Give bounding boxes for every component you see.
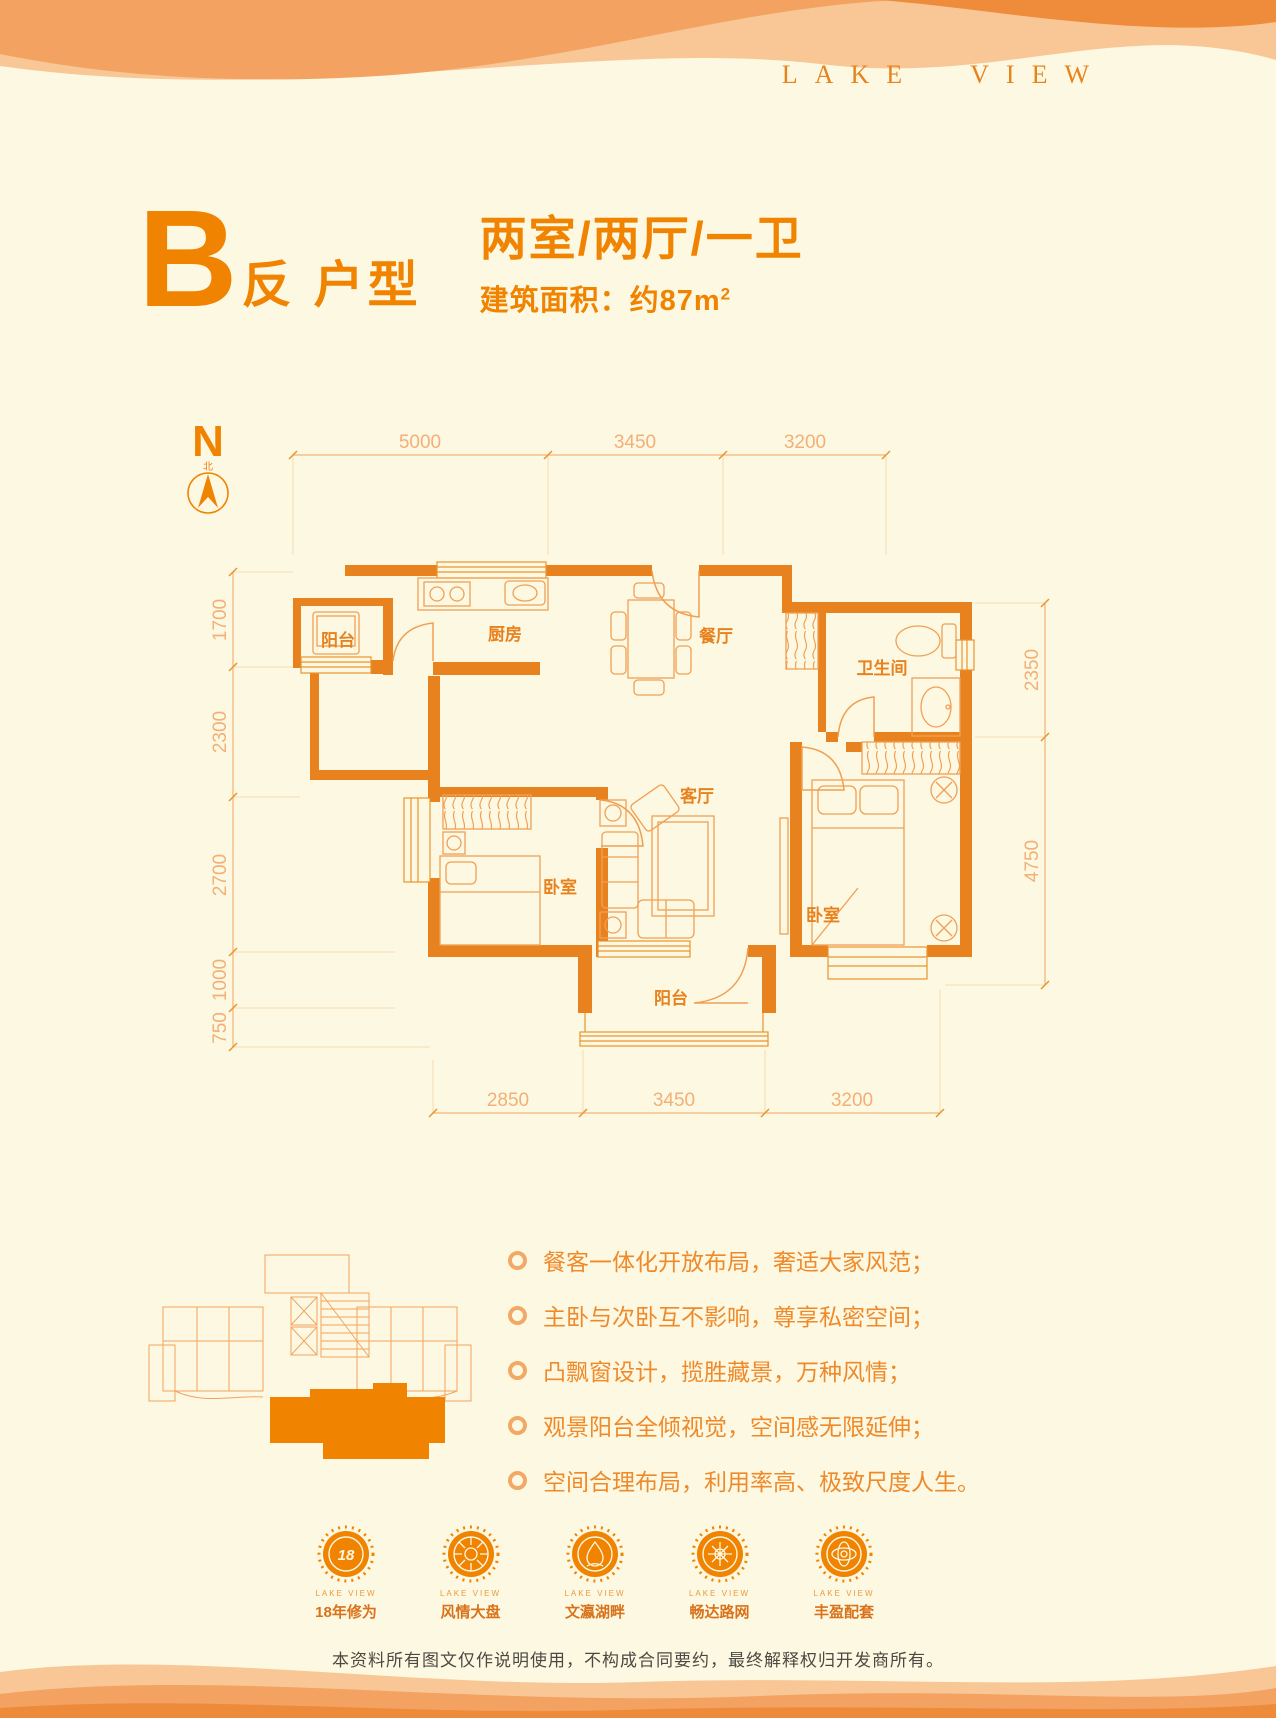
dim-left-3: 2700 [210, 854, 231, 896]
badge-label: 18年修为 [315, 1601, 377, 1622]
bullet-ring-icon [508, 1361, 527, 1380]
key-plan-highlighted-unit [270, 1383, 445, 1459]
badge-subtext: LAKE VIEW [689, 1589, 750, 1598]
label-balcony-bottom: 阳台 [654, 988, 688, 1008]
medallion-icon [441, 1524, 501, 1584]
bullet-ring-icon [508, 1471, 527, 1490]
area-text: 建筑面积：约87m2 [480, 277, 804, 319]
label-bathroom: 卫生间 [857, 658, 908, 678]
badge-subtext: LAKE VIEW [315, 1589, 376, 1598]
dim-left-1: 1700 [210, 599, 231, 641]
dim-bottom: 2850 3450 3200 [429, 1090, 944, 1117]
dim-bottom-2: 3450 [653, 1090, 695, 1111]
dim-right: 2350 4750 [1022, 599, 1049, 989]
title-block: B 反 户型 两室/两厅/一卫 建筑面积：约87m2 [138, 200, 804, 319]
entry-door-arc [652, 571, 699, 617]
label-living: 客厅 [679, 786, 714, 806]
key-plan-outline [149, 1255, 471, 1401]
feature-text: 观景阳台全倾视觉，空间感无限延伸； [543, 1408, 934, 1442]
medallion-icon [690, 1524, 750, 1584]
unit-letter: B [138, 200, 238, 319]
dim-left-4: 1000 [210, 959, 231, 1001]
dim-left-2: 2300 [210, 711, 231, 753]
badge-glyph: 18 [338, 1547, 355, 1564]
layout-title: 两室/两厅/一卫 [480, 200, 804, 269]
feature-item: 主卧与次卧互不影响，尊享私密空间； [508, 1298, 948, 1332]
bedroom-right-door-arc [802, 747, 844, 790]
badge-lakeside: LAKE VIEW 文瀛湖畔 [537, 1524, 653, 1622]
feature-item: 凸飘窗设计，揽胜藏景，万种风情； [508, 1353, 948, 1387]
feature-item: 空间合理布局，利用率高、极致尺度人生。 [508, 1463, 948, 1497]
kitchen-balcony-door-arc [393, 623, 433, 661]
plan-furniture [313, 578, 960, 945]
dim-top: 5000 3450 3200 [289, 432, 890, 459]
dim-bottom-1: 2850 [487, 1090, 529, 1111]
dim-right-1: 2350 [1022, 649, 1043, 691]
dim-left-5: 750 [210, 1012, 231, 1044]
label-balcony-top: 阳台 [321, 630, 355, 650]
bathroom-door-arc [838, 697, 874, 737]
feature-text: 空间合理布局，利用率高、极致尺度人生。 [543, 1463, 980, 1497]
feature-text: 凸飘窗设计，揽胜藏景，万种风情； [543, 1353, 911, 1387]
bullet-ring-icon [508, 1416, 527, 1435]
badge-roads: LAKE VIEW 畅达路网 [662, 1524, 778, 1622]
label-kitchen: 厨房 [488, 624, 522, 644]
badge-style: LAKE VIEW 风情大盘 [413, 1524, 529, 1622]
balcony-door-arc [694, 948, 748, 1003]
area-value: 建筑面积：约87m [480, 285, 721, 317]
bullet-ring-icon [508, 1306, 527, 1325]
dim-top-1: 5000 [399, 432, 441, 453]
brand-logo: LAKE VIEW [782, 60, 1106, 90]
badge-row: 18 LAKE VIEW 18年修为 LAKE VIEW 风情大盘 [288, 1524, 902, 1622]
medallion-icon [814, 1524, 874, 1584]
badge-amenities: LAKE VIEW 丰盈配套 [786, 1524, 902, 1622]
feature-item: 餐客一体化开放布局，奢适大家风范； [508, 1243, 948, 1277]
badge-subtext: LAKE VIEW [440, 1589, 501, 1598]
bullet-ring-icon [508, 1251, 527, 1270]
badge-label: 风情大盘 [440, 1601, 500, 1622]
medallion-icon: 18 [316, 1524, 376, 1584]
badge-label: 畅达路网 [689, 1601, 749, 1622]
extension-lines [233, 455, 1045, 1113]
title-right: 两室/两厅/一卫 建筑面积：约87m2 [480, 200, 804, 319]
key-plan [145, 1245, 475, 1475]
dim-top-2: 3450 [614, 432, 656, 453]
floor-plan: 5000 3450 3200 1700 2300 2700 1000 750 2… [190, 418, 1070, 1130]
feature-item: 观景阳台全倾视觉，空间感无限延伸； [508, 1408, 948, 1442]
medallion-icon [565, 1524, 625, 1584]
badge-subtext: LAKE VIEW [813, 1589, 874, 1598]
area-superscript: 2 [721, 284, 731, 303]
badge-18-years: 18 LAKE VIEW 18年修为 [288, 1524, 404, 1622]
plan-windows [301, 562, 974, 1046]
label-dining: 餐厅 [699, 626, 733, 646]
badge-subtext: LAKE VIEW [564, 1589, 625, 1598]
badge-label: 文瀛湖畔 [565, 1601, 625, 1622]
unit-type-suffix: 反 户型 [242, 245, 422, 317]
badge-label: 丰盈配套 [814, 1601, 874, 1622]
dim-left: 1700 2300 2700 1000 750 [210, 568, 237, 1051]
disclaimer-text: 本资料所有图文仅作说明使用，不构成合同要约，最终解释权归开发商所有。 [0, 1646, 1276, 1671]
dim-right-2: 4750 [1022, 840, 1043, 882]
dim-top-3: 3200 [784, 432, 826, 453]
flyer-page: LAKE VIEW B 反 户型 两室/两厅/一卫 建筑面积：约87m2 N 北 [0, 0, 1276, 1718]
feature-list: 餐客一体化开放布局，奢适大家风范； 主卧与次卧互不影响，尊享私密空间； 凸飘窗设… [508, 1243, 948, 1518]
feature-text: 餐客一体化开放布局，奢适大家风范； [543, 1243, 934, 1277]
dim-bottom-3: 3200 [831, 1090, 873, 1111]
feature-text: 主卧与次卧互不影响，尊享私密空间； [543, 1298, 934, 1332]
label-bedroom-left: 卧室 [543, 877, 577, 897]
label-bedroom-right: 卧室 [806, 905, 840, 925]
